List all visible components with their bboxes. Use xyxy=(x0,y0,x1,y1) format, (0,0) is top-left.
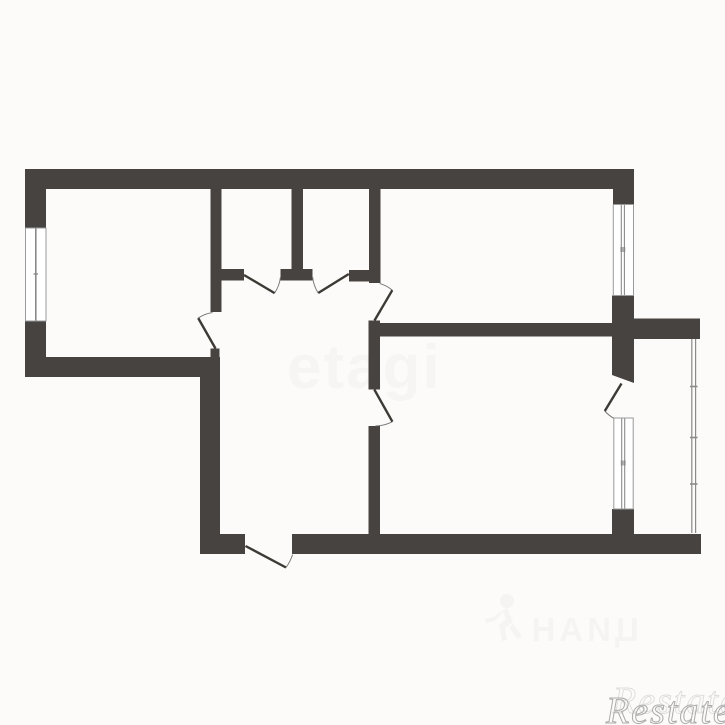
svg-text:Restate: Restate xyxy=(605,690,725,725)
svg-text:etagi: etagi xyxy=(287,333,442,402)
svg-text:ЦИАН: ЦИАН xyxy=(528,611,640,648)
